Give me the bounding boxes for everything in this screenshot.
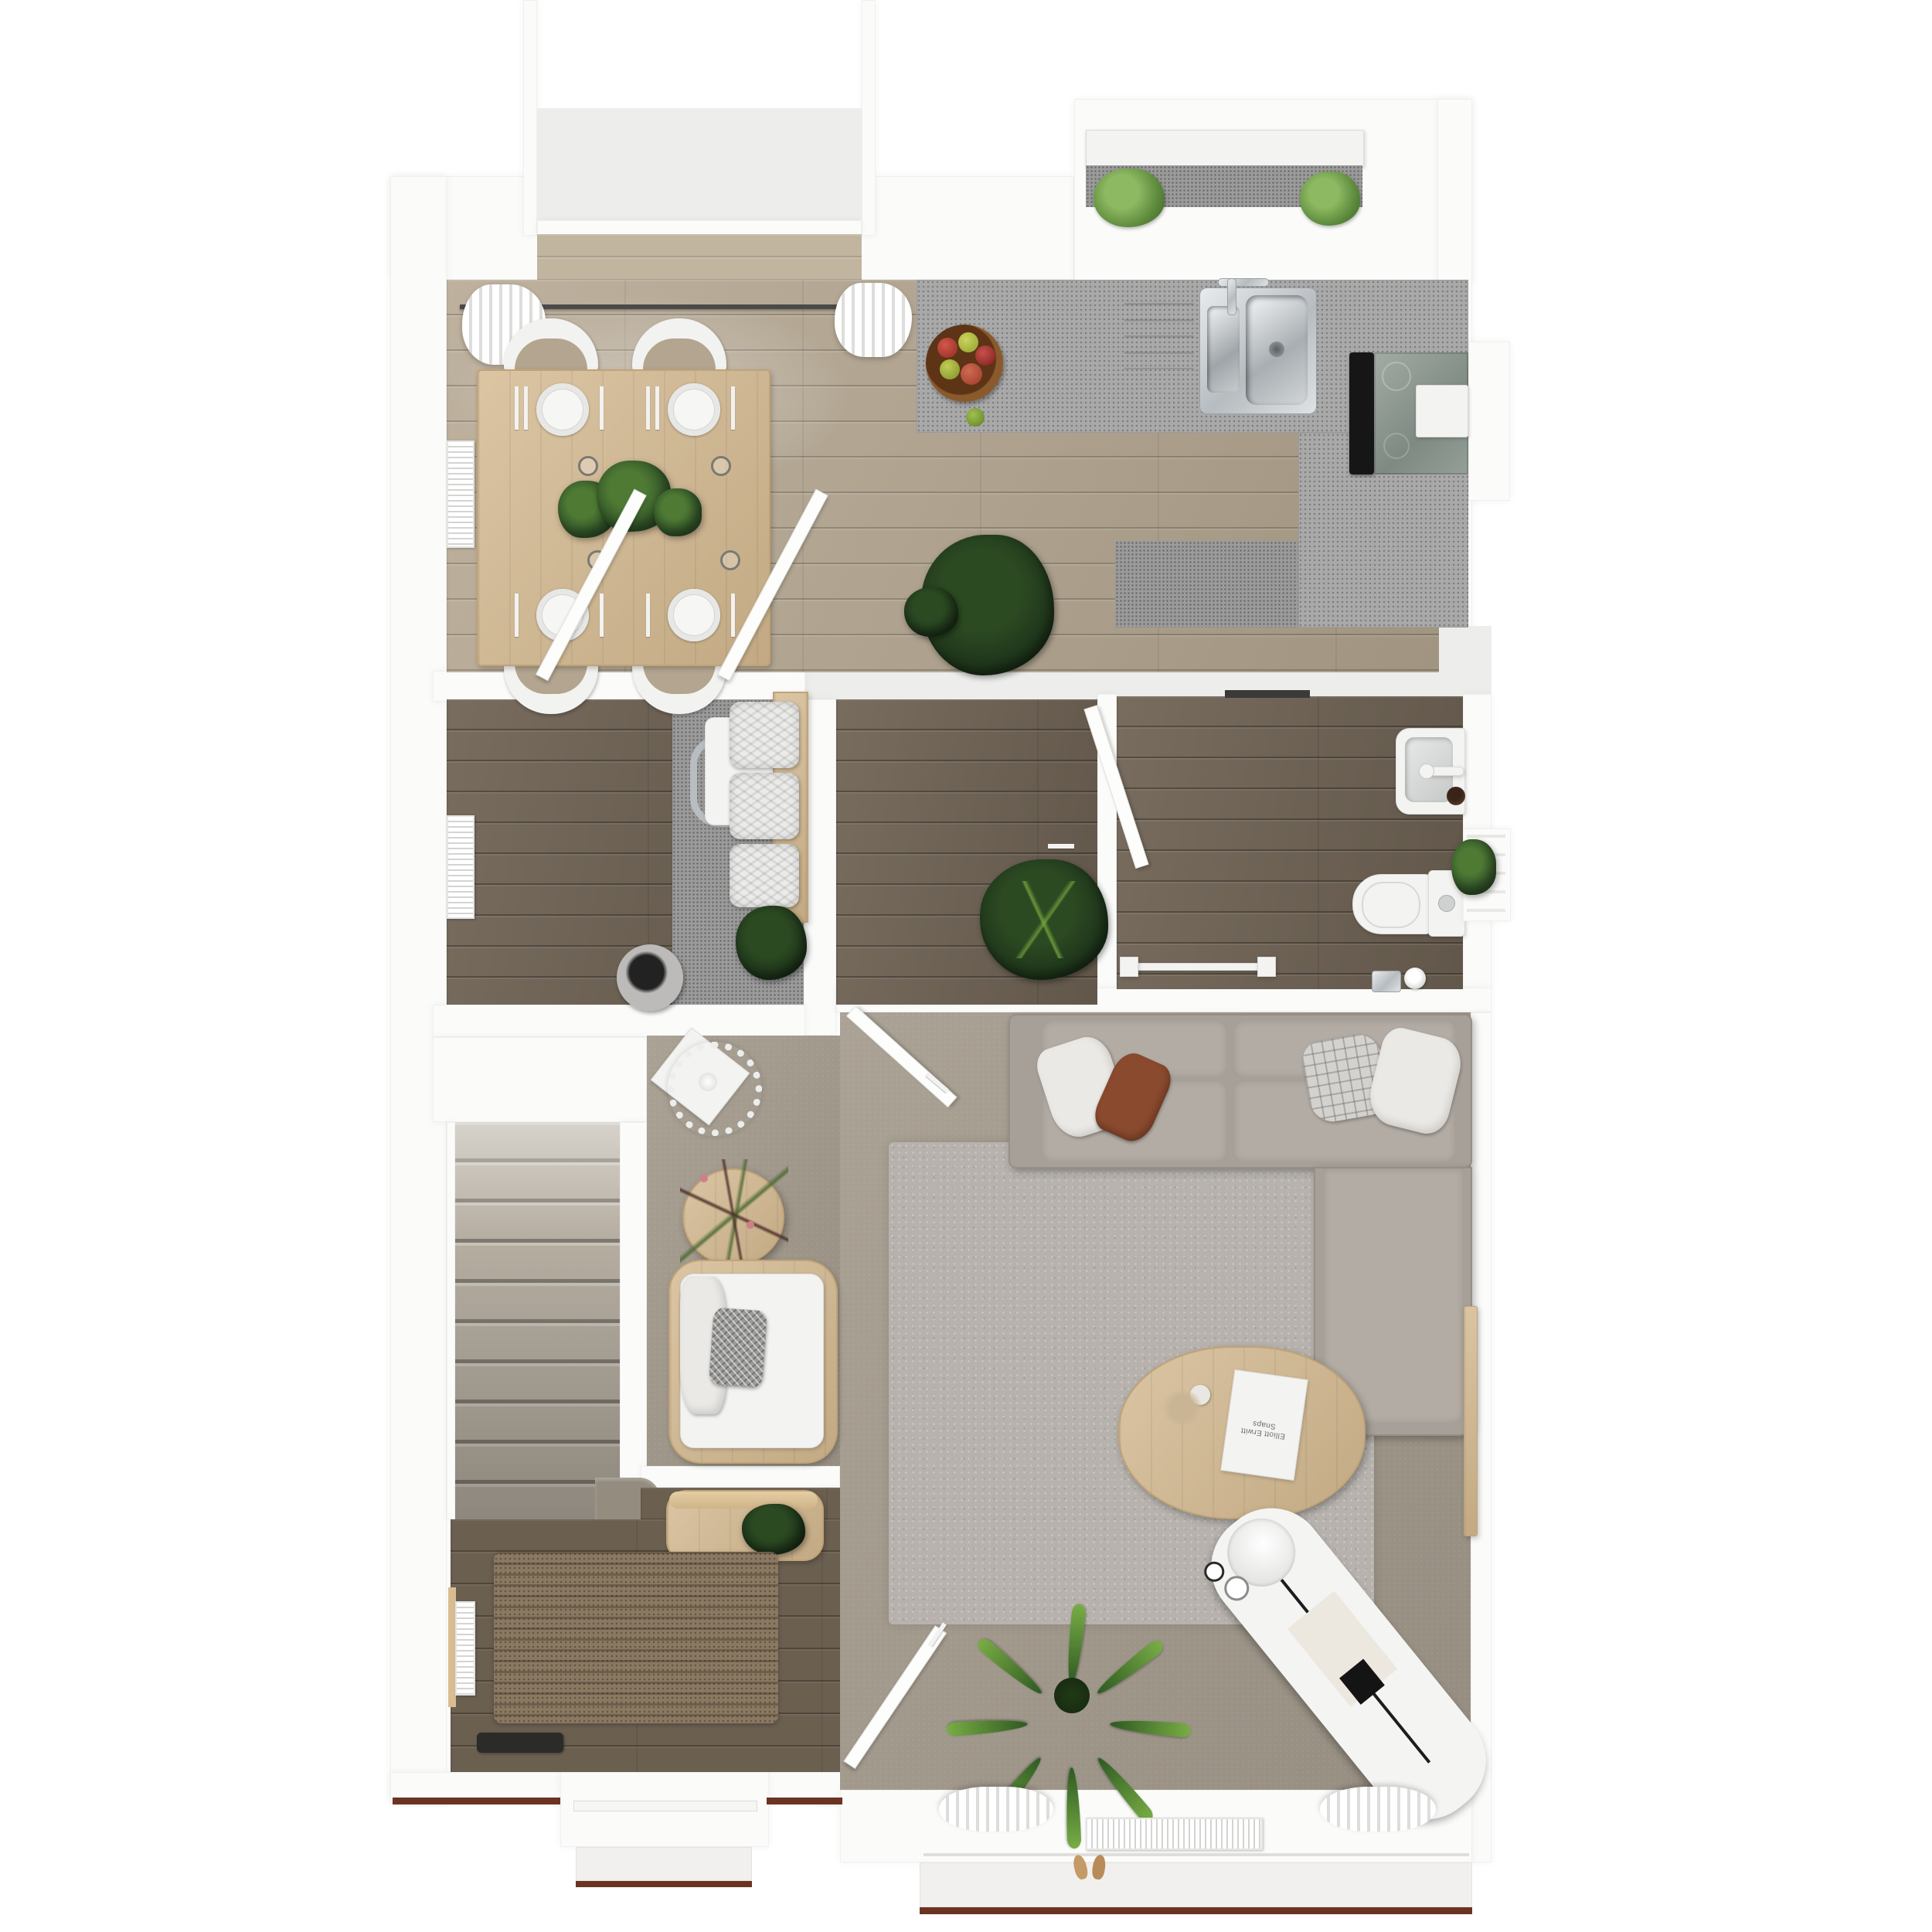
- storage-basket-3: [730, 844, 799, 907]
- dracaena-core: [1054, 1678, 1090, 1713]
- cutlery-fork-4: [646, 594, 650, 637]
- towel-rail-end-left: [1120, 957, 1138, 977]
- ground-edge-left: [393, 1798, 560, 1804]
- shoe-tray: [477, 1733, 563, 1753]
- oven-drawer: [1416, 385, 1468, 437]
- toilet-flush-button: [1438, 895, 1455, 912]
- living-window-radiator: [1086, 1818, 1263, 1850]
- apple-green-2: [940, 359, 960, 379]
- dracaena-leaf: [1065, 1767, 1082, 1849]
- dracaena-leaf: [1064, 1604, 1087, 1685]
- armchair-pillow-herringbone: [709, 1308, 768, 1389]
- storage-basket-2: [730, 773, 799, 839]
- living-curtain-right: [1320, 1787, 1436, 1832]
- ground-edge-mid: [767, 1798, 842, 1804]
- front-door-leaf: [573, 1801, 757, 1811]
- soap-dish: [1447, 787, 1465, 805]
- pendant-lamp-bulb: [699, 1073, 717, 1091]
- apple-red-2: [975, 345, 995, 366]
- dracaena-plant: [980, 1604, 1165, 1789]
- cutlery-knife-2: [655, 386, 659, 430]
- water-glass-1: [578, 456, 598, 476]
- place-setting-plate-1: [536, 383, 589, 436]
- storage-basket-1: [730, 702, 799, 768]
- flower-bud-1: [700, 1175, 708, 1182]
- floor-plan-canvas: Elliott Erwitt Snaps: [0, 0, 1932, 1932]
- bay-window-pillar-left: [523, 0, 537, 236]
- cutlery-spoon-3: [600, 594, 604, 637]
- appliance-bay-wall: [1468, 342, 1510, 501]
- flower-bud-2: [747, 1221, 754, 1229]
- basin-tap-cap: [1419, 764, 1434, 779]
- alocasia-veins: [1002, 881, 1087, 958]
- bathroom-plant: [1451, 839, 1496, 895]
- dracaena-leaf: [975, 1636, 1046, 1699]
- toilet-seat-line: [1362, 882, 1420, 928]
- dried-flower: [1159, 1391, 1206, 1425]
- living-window-sill-line: [923, 1853, 1469, 1856]
- cutlery-spoon-1: [600, 386, 604, 430]
- landing-under-study: [433, 1037, 647, 1122]
- cutlery-knife-1: [524, 386, 528, 430]
- sink-drain-hole: [1269, 342, 1284, 357]
- console-top-plate: [669, 1492, 818, 1509]
- toilet-paper-holder: [1372, 971, 1401, 992]
- wall-dining-bottom: [433, 671, 805, 702]
- study-plant: [736, 906, 807, 980]
- curtain-right: [835, 283, 912, 357]
- windowsill-plant-right: [1300, 172, 1360, 226]
- bay-window-interior: [537, 108, 862, 220]
- ground-edge-living: [920, 1907, 1472, 1914]
- study-radiator: [447, 815, 474, 919]
- wall-hall-living: [641, 1466, 840, 1488]
- stairs-stringer-left: [447, 1122, 455, 1519]
- towel-rail: [1123, 963, 1274, 971]
- sink-tap-spout: [1227, 278, 1236, 315]
- bay-window-pillar-right: [862, 0, 876, 236]
- sink-basin-small: [1207, 306, 1240, 393]
- cutlery-spoon-4: [731, 594, 735, 637]
- wall-stairs-right: [620, 1122, 647, 1519]
- sink-tap: [1218, 278, 1269, 287]
- apple-red-3: [961, 363, 982, 385]
- sink-drain-grooves: [1124, 303, 1194, 369]
- water-glass-4: [720, 550, 740, 570]
- hob-burner-ring-2: [1383, 433, 1410, 459]
- dracaena-leaf: [1094, 1638, 1166, 1699]
- staircase-steps: [455, 1122, 620, 1519]
- laundry-basket: [617, 944, 683, 1011]
- cutlery-fork-2: [646, 386, 650, 430]
- cutlery-fork-3: [515, 594, 519, 637]
- side-table-flowers: [680, 1159, 788, 1267]
- kitchen-window-frame: [1086, 130, 1364, 167]
- inner-door-handle: [1048, 844, 1074, 849]
- dining-radiator: [447, 440, 474, 548]
- hob-burner-ring-1: [1382, 362, 1411, 391]
- bay-window-sill: [537, 220, 862, 236]
- water-glass-2: [711, 456, 731, 476]
- apple-stray: [966, 408, 985, 427]
- front-door-porch: [576, 1847, 752, 1881]
- cutlery-fork-1: [515, 386, 519, 430]
- living-curtain-left: [939, 1787, 1053, 1832]
- ground-edge-door: [576, 1881, 752, 1887]
- apple-green-1: [958, 332, 978, 352]
- cutlery-spoon-2: [731, 386, 735, 430]
- place-setting-plate-4: [668, 589, 720, 641]
- wall-study-bottom: [433, 1005, 805, 1037]
- kitchen-counter-patch: [1115, 541, 1298, 628]
- apple-red-1: [937, 338, 957, 358]
- living-wall-ledge: [1464, 1306, 1478, 1536]
- wall-left: [390, 176, 447, 1803]
- jute-doormat: [494, 1552, 778, 1723]
- hall-radiator: [455, 1601, 475, 1696]
- pendant-lamp-ring: [668, 1042, 762, 1136]
- monstera-leaf: [904, 587, 958, 637]
- console-plant: [742, 1504, 805, 1555]
- table-plant-right: [654, 488, 702, 536]
- windowsill-plant-left: [1094, 168, 1165, 227]
- place-setting-plate-2: [668, 383, 720, 436]
- living-window-porch: [920, 1862, 1472, 1907]
- bathroom-bin: [1404, 968, 1426, 989]
- bay-window-nook-floor: [537, 234, 862, 281]
- towel-rail-end-right: [1257, 957, 1276, 977]
- bathroom-lintel: [1225, 690, 1310, 698]
- wall-between-inner-rooms: [804, 699, 836, 1036]
- induction-hob: [1349, 352, 1374, 474]
